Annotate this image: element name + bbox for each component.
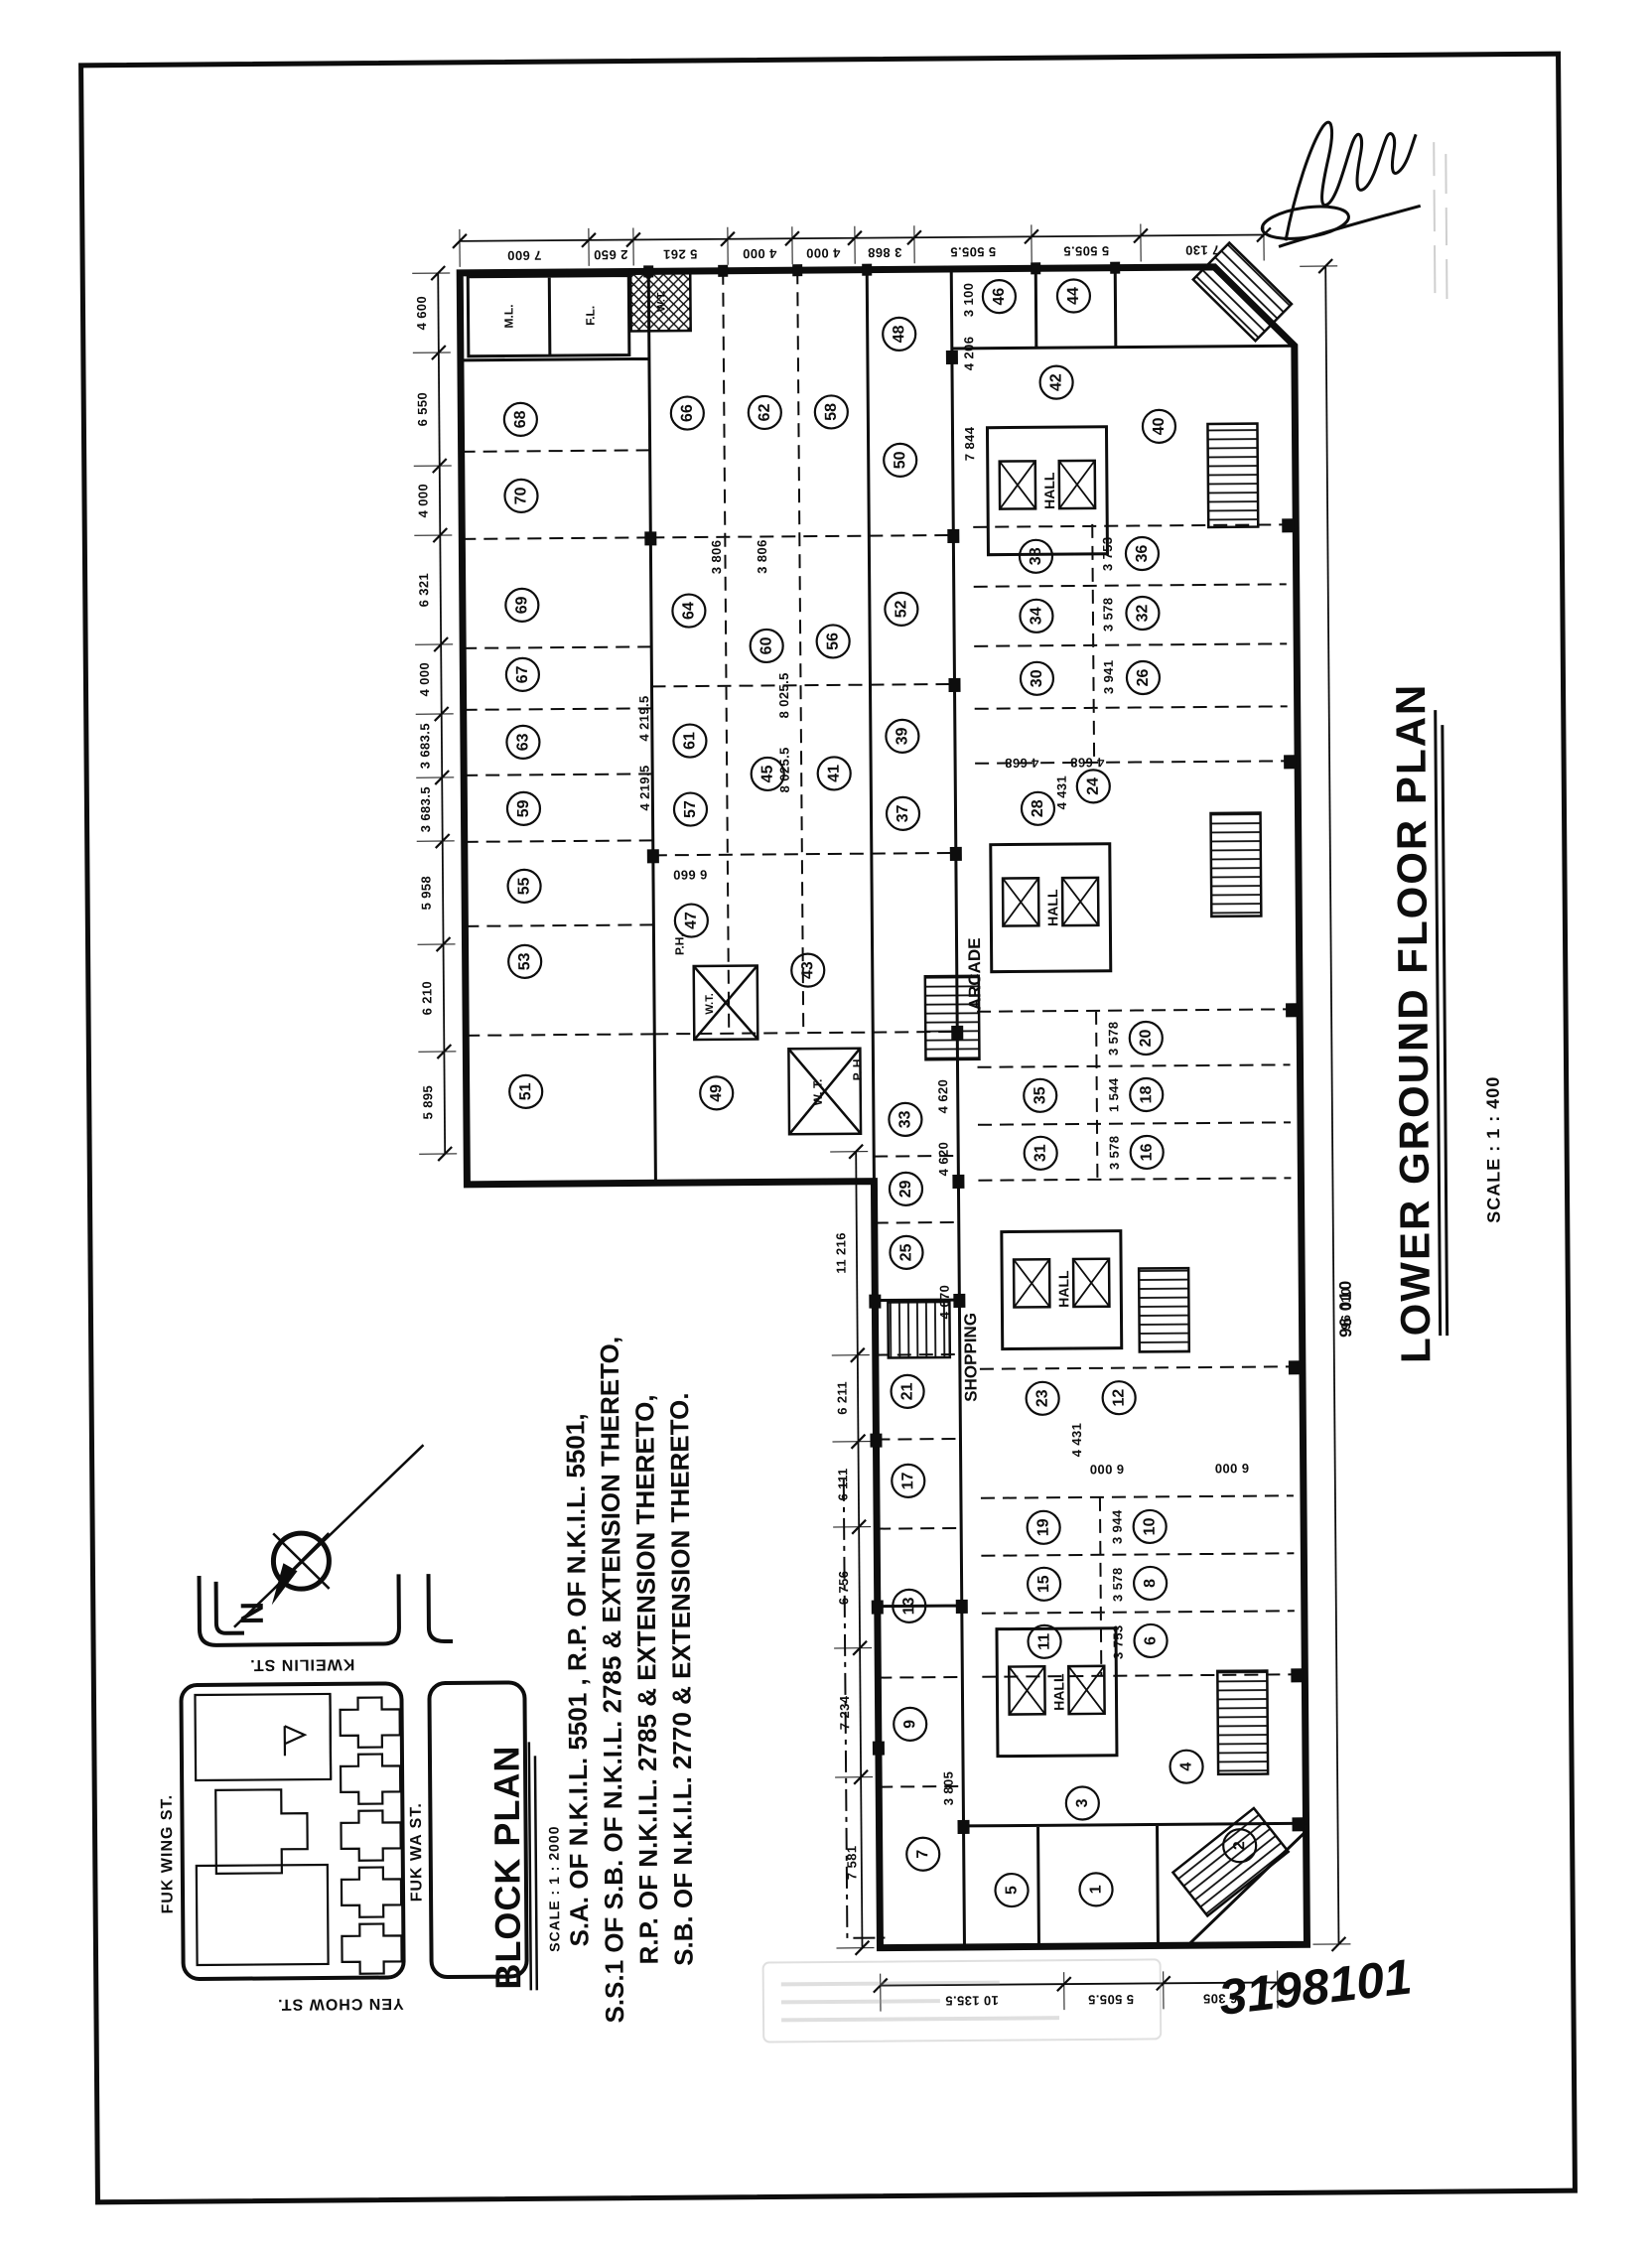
unit-circle: 15 <box>1028 1568 1060 1601</box>
unit-number: 30 <box>1029 669 1045 687</box>
dimension-label: 1 544 <box>1106 1077 1121 1112</box>
lift-icon <box>1014 1259 1049 1307</box>
dimension-label: 3 683.5 <box>417 723 432 769</box>
unit-circle: 36 <box>1126 537 1159 570</box>
unit-number: 34 <box>1028 607 1044 625</box>
unit-circle: 52 <box>885 593 917 626</box>
lift-icon <box>1000 461 1035 508</box>
dimension-label: 2 650 <box>594 247 628 262</box>
unit-circle: 42 <box>1039 366 1072 399</box>
lift-icon <box>1009 1666 1044 1714</box>
unit-number: 68 <box>512 410 529 428</box>
unit-circle: 33 <box>889 1103 921 1136</box>
unit-number: 10 <box>1142 1517 1159 1535</box>
dimension-label: 5 958 <box>418 876 433 911</box>
unit-number: 25 <box>897 1243 914 1261</box>
unit-number: 18 <box>1138 1085 1155 1103</box>
room-label: HALL <box>1050 1673 1066 1711</box>
dimension-label: 3 683.5 <box>418 786 433 832</box>
unit-circle: 26 <box>1127 661 1160 694</box>
unit-circle: 43 <box>791 954 824 987</box>
dimension-label: 4 600 <box>414 296 429 331</box>
dimension-label: 7 844 <box>962 426 977 461</box>
dimension-label: 10 135.5 <box>945 1993 999 2008</box>
unit-circle: 31 <box>1025 1137 1057 1170</box>
unit-circle: 1 <box>1079 1873 1112 1905</box>
unit-circle: 66 <box>671 396 704 429</box>
plan-title: LOWER GROUND FLOOR PLAN <box>1387 683 1439 1364</box>
unit-number: 43 <box>799 961 816 979</box>
dimension-label: 4 431 <box>1069 1423 1084 1458</box>
dimension-label: 3 868 <box>868 245 902 260</box>
unit-circle: 30 <box>1021 662 1053 695</box>
room-label: ARCADE <box>965 937 985 1010</box>
room-label: P.H. <box>672 933 686 955</box>
unit-number: 38 <box>1028 547 1044 565</box>
unit-circle: 50 <box>884 444 916 477</box>
unit-number: 36 <box>1134 544 1151 562</box>
unit-number: 53 <box>516 952 533 970</box>
unit-number: 3 <box>1074 1798 1091 1807</box>
room-label: HALL <box>1055 1270 1071 1308</box>
dimension-label: 5 505.5 <box>950 244 996 259</box>
unit-number: 5 <box>1003 1886 1020 1895</box>
dimension-label: 3 753 <box>1110 1624 1125 1659</box>
unit-number: 12 <box>1111 1389 1128 1407</box>
dimension-label: 4 431 <box>1054 775 1069 810</box>
unit-circle: 35 <box>1024 1079 1056 1112</box>
block-plan-inset: N <box>155 1336 699 2027</box>
unit-number: 47 <box>683 912 700 929</box>
lot-description-line: S.B. OF N.K.I.L. 2770 & EXTENSION THERET… <box>664 1392 699 1966</box>
lift-icon <box>1068 1666 1104 1714</box>
unit-circle: 37 <box>887 797 919 830</box>
scanned-drawing-sheet: 6870696763595553516662584850646056526157… <box>0 0 1652 2256</box>
unit-number: 62 <box>757 403 773 421</box>
unit-circle: 56 <box>817 625 850 657</box>
unit-number: 32 <box>1134 604 1151 622</box>
unit-circle: 44 <box>1057 279 1090 312</box>
unit-circle: 58 <box>815 395 848 428</box>
unit-circle: 5 <box>995 1874 1028 1906</box>
unit-circle: 47 <box>675 904 708 936</box>
street-label-fuk-wa: FUK WA ST. <box>408 1802 426 1902</box>
lot-description-line: S.A. OF N.K.I.L. 5501 , R.P. OF N.K.I.L.… <box>560 1413 594 1946</box>
dimension-label: 5 505.5 <box>1088 1992 1134 2007</box>
unit-circle: 17 <box>892 1465 924 1497</box>
unit-number: 23 <box>1034 1389 1051 1407</box>
unit-circle: 6 <box>1134 1624 1167 1657</box>
room-label: SHOPPING <box>961 1313 981 1402</box>
unit-number: 59 <box>515 799 532 817</box>
dimension-label: 4 000 <box>806 245 841 260</box>
unit-circle: 64 <box>672 594 705 627</box>
dimension-label: 3 100 <box>961 283 976 318</box>
unit-circle: 25 <box>890 1236 922 1269</box>
unit-number: 19 <box>1035 1518 1052 1536</box>
dimension-label: 4 668 <box>1070 755 1105 770</box>
dimension-label: 3 805 <box>941 1771 956 1806</box>
unit-number: 6 <box>1143 1636 1160 1645</box>
dimension-label: 6 550 <box>415 392 430 427</box>
dimension-label: 7 581 <box>844 1845 859 1880</box>
room-label: HALL <box>1041 472 1057 509</box>
dimension-label: 4 206 <box>961 337 976 371</box>
dimension-label: 3 578 <box>1107 1135 1122 1170</box>
dimension-label: 6 321 <box>416 573 431 608</box>
dimension-label: 6 211 <box>835 1381 850 1415</box>
unit-number: 31 <box>1032 1144 1049 1162</box>
room-label: W. T. <box>811 1079 825 1106</box>
unit-number: 41 <box>826 765 843 782</box>
city-block-main <box>181 1683 403 1979</box>
faint-stamp-marks <box>1434 142 1446 299</box>
unit-number: 9 <box>901 1720 918 1729</box>
unit-circle: 9 <box>894 1708 926 1741</box>
dimension-label: 3 806 <box>755 539 769 574</box>
dimension-chain <box>453 222 1271 266</box>
unit-circle: 70 <box>504 480 537 512</box>
unit-number: 69 <box>513 596 530 614</box>
dimension-label: 4 219.5 <box>636 695 651 741</box>
unit-number: 15 <box>1035 1575 1052 1593</box>
unit-circle: 7 <box>906 1838 939 1871</box>
dimension-label: 7 600 <box>507 248 542 263</box>
unit-number: 35 <box>1032 1086 1048 1104</box>
unit-number: 45 <box>759 765 776 782</box>
unit-circle: 32 <box>1126 597 1159 630</box>
unit-circle: 49 <box>700 1076 733 1109</box>
unit-circle: 51 <box>509 1075 542 1108</box>
unit-number: 39 <box>894 727 910 745</box>
dimension-label: 3 578 <box>1100 597 1115 632</box>
unit-number: 13 <box>900 1597 917 1615</box>
unit-circle: 23 <box>1027 1382 1059 1415</box>
room-label: F.L. <box>583 306 597 326</box>
unit-circle: 53 <box>508 945 541 978</box>
unit-number: 8 <box>1142 1579 1159 1588</box>
dimension-label: 7 234 <box>837 1695 852 1730</box>
dimension-label: 5 895 <box>420 1085 435 1120</box>
unit-circle: 29 <box>890 1173 922 1205</box>
stair-icon <box>1217 1671 1268 1774</box>
stair-icon <box>1211 813 1262 916</box>
dimension-label: 11 216 <box>833 1232 848 1274</box>
dimension-label: 5 261 <box>663 246 698 261</box>
north-label: N <box>234 1602 270 1624</box>
unit-circle: 48 <box>883 318 915 351</box>
room-label: P. H. <box>850 1056 864 1080</box>
unit-number: 11 <box>1036 1633 1053 1650</box>
plan-scale: SCALE : 1 : 400 <box>1483 1076 1504 1223</box>
unit-circle: 60 <box>751 630 783 662</box>
unit-circle: 61 <box>673 724 706 757</box>
unit-circle: 34 <box>1020 600 1052 633</box>
stamp-number: 3198101 <box>1216 1948 1415 2026</box>
unit-number: 20 <box>1138 1029 1155 1047</box>
unit-number: 24 <box>1085 777 1102 795</box>
stair-icon <box>1139 1268 1189 1351</box>
unit-number: 21 <box>899 1382 916 1400</box>
unit-number: 67 <box>514 665 531 683</box>
lot-description-line: R.P. OF N.K.I.L. 2785 & EXTENSION THERET… <box>629 1394 664 1964</box>
dimension-label: 3 944 <box>1110 1509 1125 1544</box>
staircases <box>630 242 1305 1920</box>
room-label: M.L. <box>501 304 515 328</box>
unit-number: 58 <box>823 403 840 421</box>
unit-circle: 8 <box>1134 1567 1167 1600</box>
unit-circle: 40 <box>1143 410 1175 443</box>
unit-number: 60 <box>758 636 775 654</box>
unit-number: 28 <box>1030 799 1046 817</box>
dimension-label: 3 578 <box>1110 1567 1125 1602</box>
unit-number: 46 <box>991 288 1008 306</box>
dimension-label: 4 668 <box>1005 756 1039 771</box>
title-block: LOWER GROUND FLOOR PLAN SCALE : 1 : 400 … <box>1331 682 1505 1364</box>
building-footprints <box>195 1693 401 1975</box>
dimension-label: 3 941 <box>1101 659 1116 694</box>
unit-circle: 21 <box>891 1375 923 1408</box>
unit-circle: 16 <box>1131 1136 1164 1169</box>
unit-number: 64 <box>680 602 697 620</box>
lift-icon <box>1073 1259 1109 1307</box>
room-label: HALL <box>1044 889 1060 926</box>
unit-number: 52 <box>893 600 909 618</box>
lot-description-line: S.S.1 OF S.B. OF N.K.I.L. 2785 & EXTENSI… <box>595 1337 629 2024</box>
dimension-label: 7 130 <box>1185 242 1220 257</box>
floor-plan: 6870696763595553516662584850646056526157… <box>412 202 1365 2015</box>
unit-circle: 41 <box>818 757 851 789</box>
dimension-label: 4 620 <box>935 1079 950 1114</box>
unit-circle: 38 <box>1020 540 1052 573</box>
north-arrow-icon: N <box>233 1445 425 1627</box>
lift-icon <box>1003 878 1038 925</box>
signature-scribble <box>1278 121 1421 246</box>
dimension-label: 3 753 <box>1100 536 1115 571</box>
lift-icon <box>1062 878 1098 925</box>
block-plan-underline <box>529 1742 537 1990</box>
unit-circle: 20 <box>1130 1022 1163 1055</box>
street-label-fuk-wing: FUK WING ST. <box>159 1794 177 1914</box>
unit-circle: 19 <box>1028 1511 1060 1544</box>
dimension-label: 6 210 <box>419 981 434 1016</box>
unit-number: 4 <box>1178 1762 1195 1771</box>
unit-circle: 28 <box>1022 792 1054 825</box>
room-label: W.T. <box>655 291 667 312</box>
floor-plan-svg: 6870696763595553516662584850646056526157… <box>0 0 1652 2256</box>
lift-icon <box>1059 461 1095 508</box>
unit-number: 49 <box>708 1084 725 1102</box>
unit-circle: 12 <box>1103 1381 1136 1414</box>
stair-icon <box>1207 424 1258 527</box>
block-plan-scale: SCALE : 1 : 2000 <box>546 1825 563 1951</box>
dimension-label: 6 000 <box>1089 1462 1124 1477</box>
unit-circle: 55 <box>507 870 540 903</box>
unit-number: 16 <box>1139 1143 1156 1161</box>
dimension-label: 3 806 <box>709 540 724 575</box>
unit-number: 26 <box>1135 668 1152 686</box>
unit-number: 63 <box>514 733 531 751</box>
dimension-label: 5 505.5 <box>1063 243 1109 258</box>
unit-number: 42 <box>1048 373 1065 391</box>
street-label-yen-chow: YEN CHOW ST. <box>277 1995 404 2013</box>
dimension-label: 6 660 <box>673 867 708 882</box>
unit-circle: 18 <box>1130 1078 1163 1111</box>
unit-number: 66 <box>679 404 696 422</box>
unit-circle: 39 <box>886 720 918 753</box>
unit-number: 2 <box>1231 1841 1248 1850</box>
unit-number: 61 <box>681 732 698 750</box>
dimension-label: 4 219.5 <box>637 765 652 810</box>
dimension-label: 6 756 <box>836 1571 851 1606</box>
unit-number: 70 <box>512 487 529 504</box>
dimension-label: 8 025.5 <box>776 747 791 792</box>
unit-number: 56 <box>825 633 842 650</box>
unit-circle: 4 <box>1170 1751 1202 1783</box>
unit-circle: 57 <box>674 792 707 825</box>
unit-circle: 10 <box>1134 1510 1167 1543</box>
dimension-label: 4 000 <box>415 484 430 518</box>
unit-circle: 67 <box>506 658 539 691</box>
room-label: W.T. <box>704 993 716 1014</box>
unit-circle: 24 <box>1077 770 1110 802</box>
street-label-kweilin: KWEILIN ST. <box>249 1655 354 1673</box>
unit-number: 57 <box>682 800 699 818</box>
dimension-label: 6 111 <box>835 1468 850 1500</box>
dimension-label: 4 620 <box>936 1142 951 1177</box>
dimension-label: 4 000 <box>743 246 777 261</box>
unit-number: 17 <box>899 1472 916 1489</box>
unit-number: 51 <box>517 1082 534 1100</box>
unit-number: 29 <box>897 1180 914 1198</box>
sheet-content: 6870696763595553516662584850646056526157… <box>0 0 1652 2256</box>
dimension-label: 4 000 <box>417 662 432 697</box>
dimension-label: 6 000 <box>1214 1461 1249 1476</box>
dimension-label: 3 578 <box>1106 1021 1121 1056</box>
unit-number: 50 <box>892 451 908 469</box>
sheet-border <box>81 54 1576 2202</box>
dimension-label: 8 025.5 <box>776 672 791 718</box>
unit-circle: 69 <box>505 589 538 622</box>
unit-number: 55 <box>516 877 533 895</box>
unit-number: 44 <box>1065 287 1082 305</box>
lifts-layer <box>1000 461 1113 1715</box>
unit-number: 33 <box>896 1110 913 1128</box>
unit-number: 1 <box>1087 1885 1104 1894</box>
unit-number: 40 <box>1151 417 1168 435</box>
unit-circle: 62 <box>749 396 781 429</box>
unit-circle: 59 <box>507 792 540 825</box>
unit-circle: 3 <box>1066 1786 1099 1819</box>
overall-dimension: 96 010 <box>1336 1280 1355 1338</box>
unit-circle: 68 <box>504 403 537 436</box>
unit-circle: 63 <box>506 726 539 759</box>
unit-circle: 46 <box>983 280 1016 313</box>
unit-number: 37 <box>895 804 911 822</box>
block-plan-title: BLOCK PLAN <box>485 1745 528 1989</box>
dimension-label: 4 670 <box>937 1285 952 1320</box>
unit-number: 48 <box>891 325 907 343</box>
unit-number: 7 <box>914 1850 931 1859</box>
